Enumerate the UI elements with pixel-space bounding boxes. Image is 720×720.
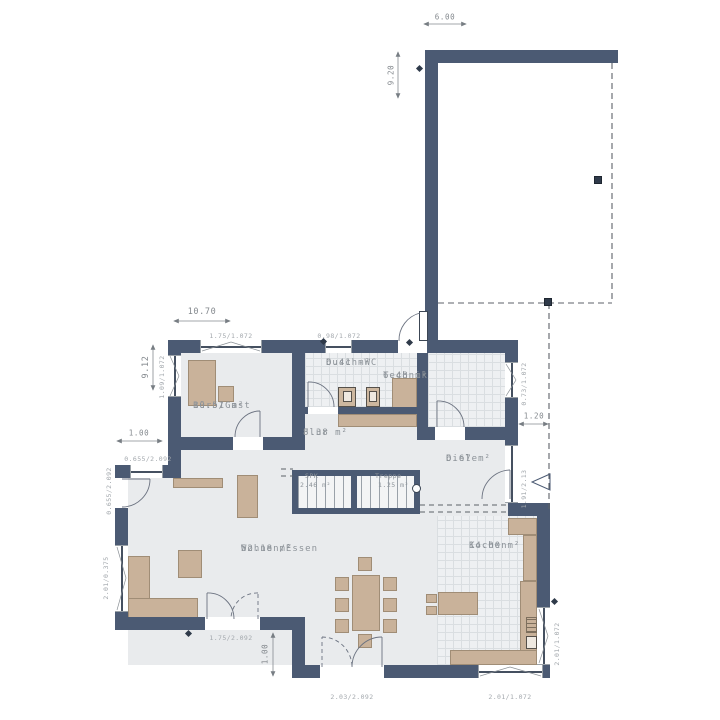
opening-label: 2.01/0.375	[102, 556, 110, 599]
dimension-label: 9.12	[141, 356, 151, 379]
opening-label: 0.73/1.072	[520, 362, 528, 405]
entrance-triangle-marker	[532, 474, 550, 490]
opening-label: 0.98/1.072	[317, 332, 360, 340]
opening-label: 2.01/1.072	[553, 622, 561, 665]
room-label-spk: SPK	[305, 472, 318, 480]
floor-plan: Büro/Gast10.51 m² Dusch-WC6.41 m² Techni…	[0, 0, 720, 720]
dimension-label: 1.00	[129, 429, 149, 438]
carport-dashed-outline	[438, 63, 612, 510]
dimension-lines	[117, 24, 548, 676]
dimension-label: 6.00	[435, 13, 455, 22]
carport-post	[594, 176, 602, 184]
dimension-label: 9.20	[387, 65, 396, 85]
room-area-spk: 2.46 m²	[300, 481, 331, 489]
window-opening-lines	[117, 342, 548, 676]
opening-label: 1.75/2.092	[209, 634, 252, 642]
carport-post	[544, 298, 552, 306]
door-swings	[122, 313, 510, 667]
dimension-label: 10.70	[188, 307, 217, 317]
opening-label: 1.09/1.072	[158, 355, 166, 398]
opening-label: 1.75/1.072	[209, 332, 252, 340]
opening-label: 2.03/2.092	[330, 693, 373, 701]
dimension-label: 1.20	[524, 412, 544, 421]
dimension-label: 1.00	[261, 644, 270, 664]
opening-label: 0.655/2.092	[124, 455, 171, 463]
opening-label: 1.91/2.13	[520, 470, 528, 509]
room-area-treppe: 1.25 m²	[378, 481, 409, 489]
opening-label: 2.01/1.072	[488, 693, 531, 701]
room-label-treppe: Treppe	[375, 472, 401, 480]
opening-label: 0.655/2.092	[105, 467, 113, 514]
